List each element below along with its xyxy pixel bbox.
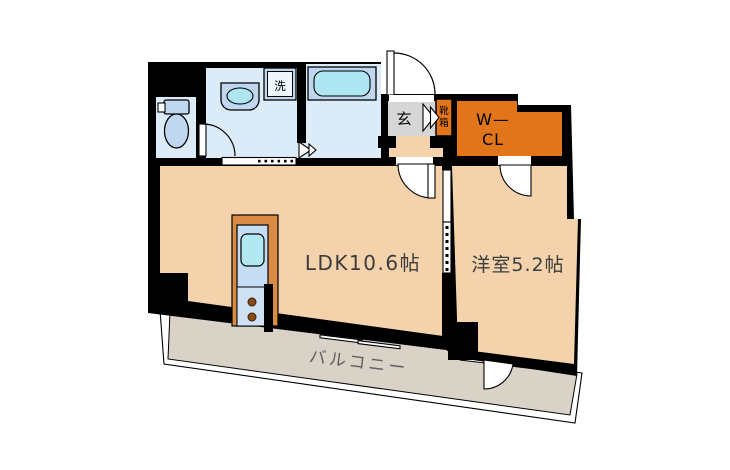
partition-wall-bottom [442,273,452,347]
dash-tick [291,160,294,163]
western-room-label: 洋室5.2帖 [471,254,564,276]
dash-tick [271,160,274,163]
washbasin-bowl-icon [227,88,253,104]
dash-tick [446,261,449,264]
stove-burner-icon [248,298,256,306]
shoe-cabinet-label-char1: 靴 [439,105,449,117]
wall-step-bottom [448,322,478,360]
toilet-door-leaf-icon [199,124,206,156]
wall-step-left [148,273,188,312]
dash-tick [278,160,281,163]
ldk-label: LDK10.6帖 [305,251,421,275]
sliding-door-partition-icon [443,170,451,273]
sliding-door-panel [443,170,451,222]
dash-tick [284,160,287,163]
hall-floor [389,148,443,157]
stove-burner-icon [248,313,256,321]
entrance-threshold [389,95,434,102]
entrance-door-leaf-icon [387,51,394,95]
hall-opening [395,136,432,150]
dash-tick [446,226,449,229]
kitchen-sink-icon [241,234,264,266]
floorplan-image: LDK10.6帖 洋室5.2帖 バルコニー 玄 洗 W— CL 靴 箱 [0,0,730,470]
dash-tick [265,160,268,163]
laundry-label: 洗 [274,79,286,93]
western-door-opening [498,156,531,165]
dash-tick [258,160,261,163]
floorplan-canvas: LDK10.6帖 洋室5.2帖 バルコニー 玄 洗 W— CL 靴 箱 [0,0,730,470]
dash-tick [446,240,449,243]
dash-tick [446,268,449,271]
sliding-door-washroom-icon [222,158,296,166]
entrance-label: 玄 [396,110,411,128]
dash-tick [446,254,449,257]
ldk-door-leaf-icon [428,164,435,198]
dash-tick [446,247,449,250]
partition-stub-top [442,157,452,170]
wcl-label-line2: CL [482,130,504,149]
toilet-bowl-icon [165,114,189,148]
shoe-cabinet-label-char2: 箱 [439,117,449,129]
wall-stub-entrance-left [378,136,396,148]
dash-tick [446,233,449,236]
toilet-tank-icon [164,100,189,114]
toilet-handle-icon [158,103,165,112]
wcl-label-line1: W— [476,110,510,129]
bathtub-icon [314,71,370,96]
kitchen-wall-stub [264,284,273,332]
wall-stub-entrance-right [430,136,453,148]
